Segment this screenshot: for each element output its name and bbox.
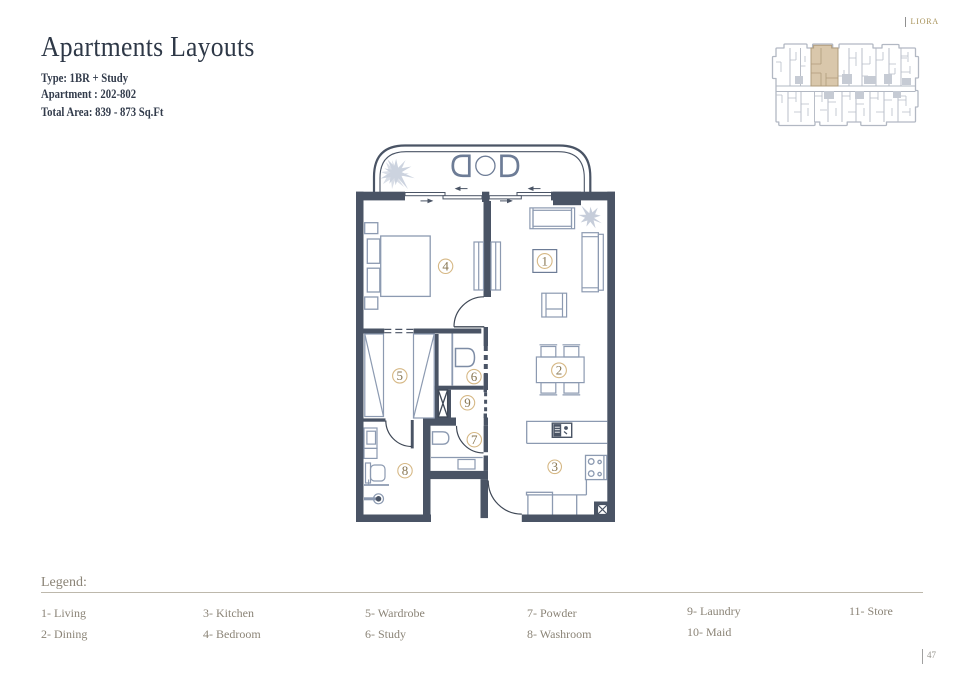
svg-text:7: 7	[471, 432, 478, 447]
svg-text:3: 3	[551, 459, 558, 474]
svg-text:2: 2	[556, 363, 563, 378]
svg-text:5: 5	[397, 368, 404, 383]
svg-text:1: 1	[541, 253, 548, 268]
svg-text:6: 6	[471, 369, 478, 384]
svg-text:9: 9	[464, 395, 471, 410]
svg-text:4: 4	[442, 259, 449, 274]
svg-text:8: 8	[402, 463, 409, 478]
